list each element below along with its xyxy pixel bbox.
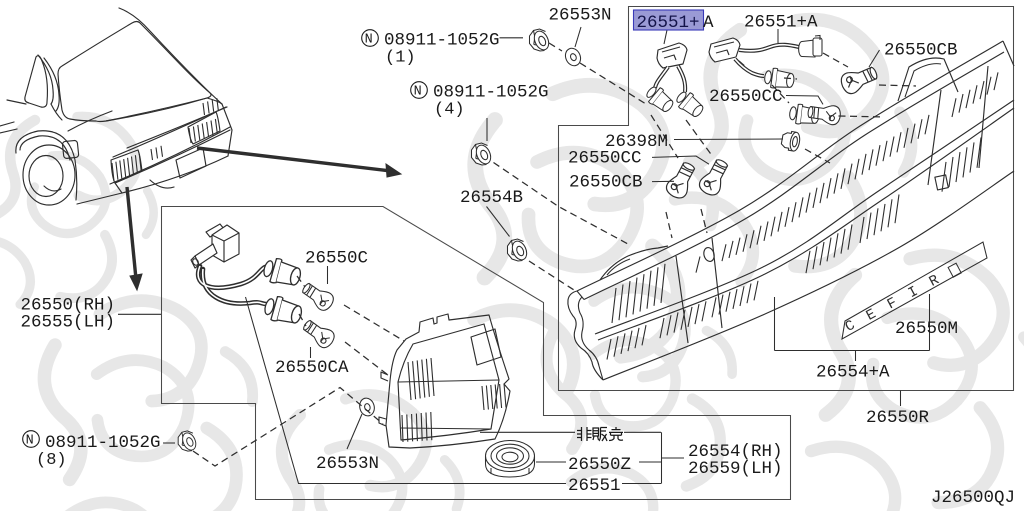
svg-text:26553N: 26553N: [549, 6, 612, 26]
svg-text:(8): (8): [36, 451, 67, 470]
svg-text:26551+A: 26551+A: [744, 13, 818, 33]
svg-text:26551+: 26551+: [637, 13, 700, 33]
svg-text:26550CA: 26550CA: [275, 358, 349, 378]
svg-text:N: N: [365, 33, 373, 48]
svg-text:26550C: 26550C: [305, 249, 368, 269]
svg-text:26550CC: 26550CC: [568, 149, 642, 169]
svg-text:J26500QJ: J26500QJ: [931, 488, 1015, 508]
svg-text:26555(LH): 26555(LH): [21, 313, 116, 333]
svg-text:A: A: [703, 13, 714, 33]
svg-text:N: N: [26, 434, 34, 449]
svg-text:26554B: 26554B: [460, 188, 523, 208]
svg-text:26550R: 26550R: [866, 408, 930, 428]
svg-text:26550CB: 26550CB: [884, 41, 958, 61]
svg-text:26550M: 26550M: [895, 319, 958, 339]
svg-text:26554+A: 26554+A: [816, 363, 890, 383]
svg-text:N: N: [414, 85, 422, 100]
svg-text:26553N: 26553N: [316, 454, 379, 474]
svg-text:26550CB: 26550CB: [569, 173, 643, 193]
svg-text:26550Z: 26550Z: [568, 455, 631, 475]
svg-text:26550CC: 26550CC: [709, 87, 783, 107]
svg-text:(1): (1): [385, 49, 416, 68]
svg-text:08911-1052G: 08911-1052G: [384, 31, 500, 51]
svg-text:26559(LH): 26559(LH): [688, 459, 783, 479]
svg-text:08911-1052G: 08911-1052G: [433, 83, 549, 103]
svg-text:08911-1052G: 08911-1052G: [45, 433, 161, 453]
svg-text:(4): (4): [434, 101, 465, 120]
svg-text:26551: 26551: [568, 476, 621, 496]
